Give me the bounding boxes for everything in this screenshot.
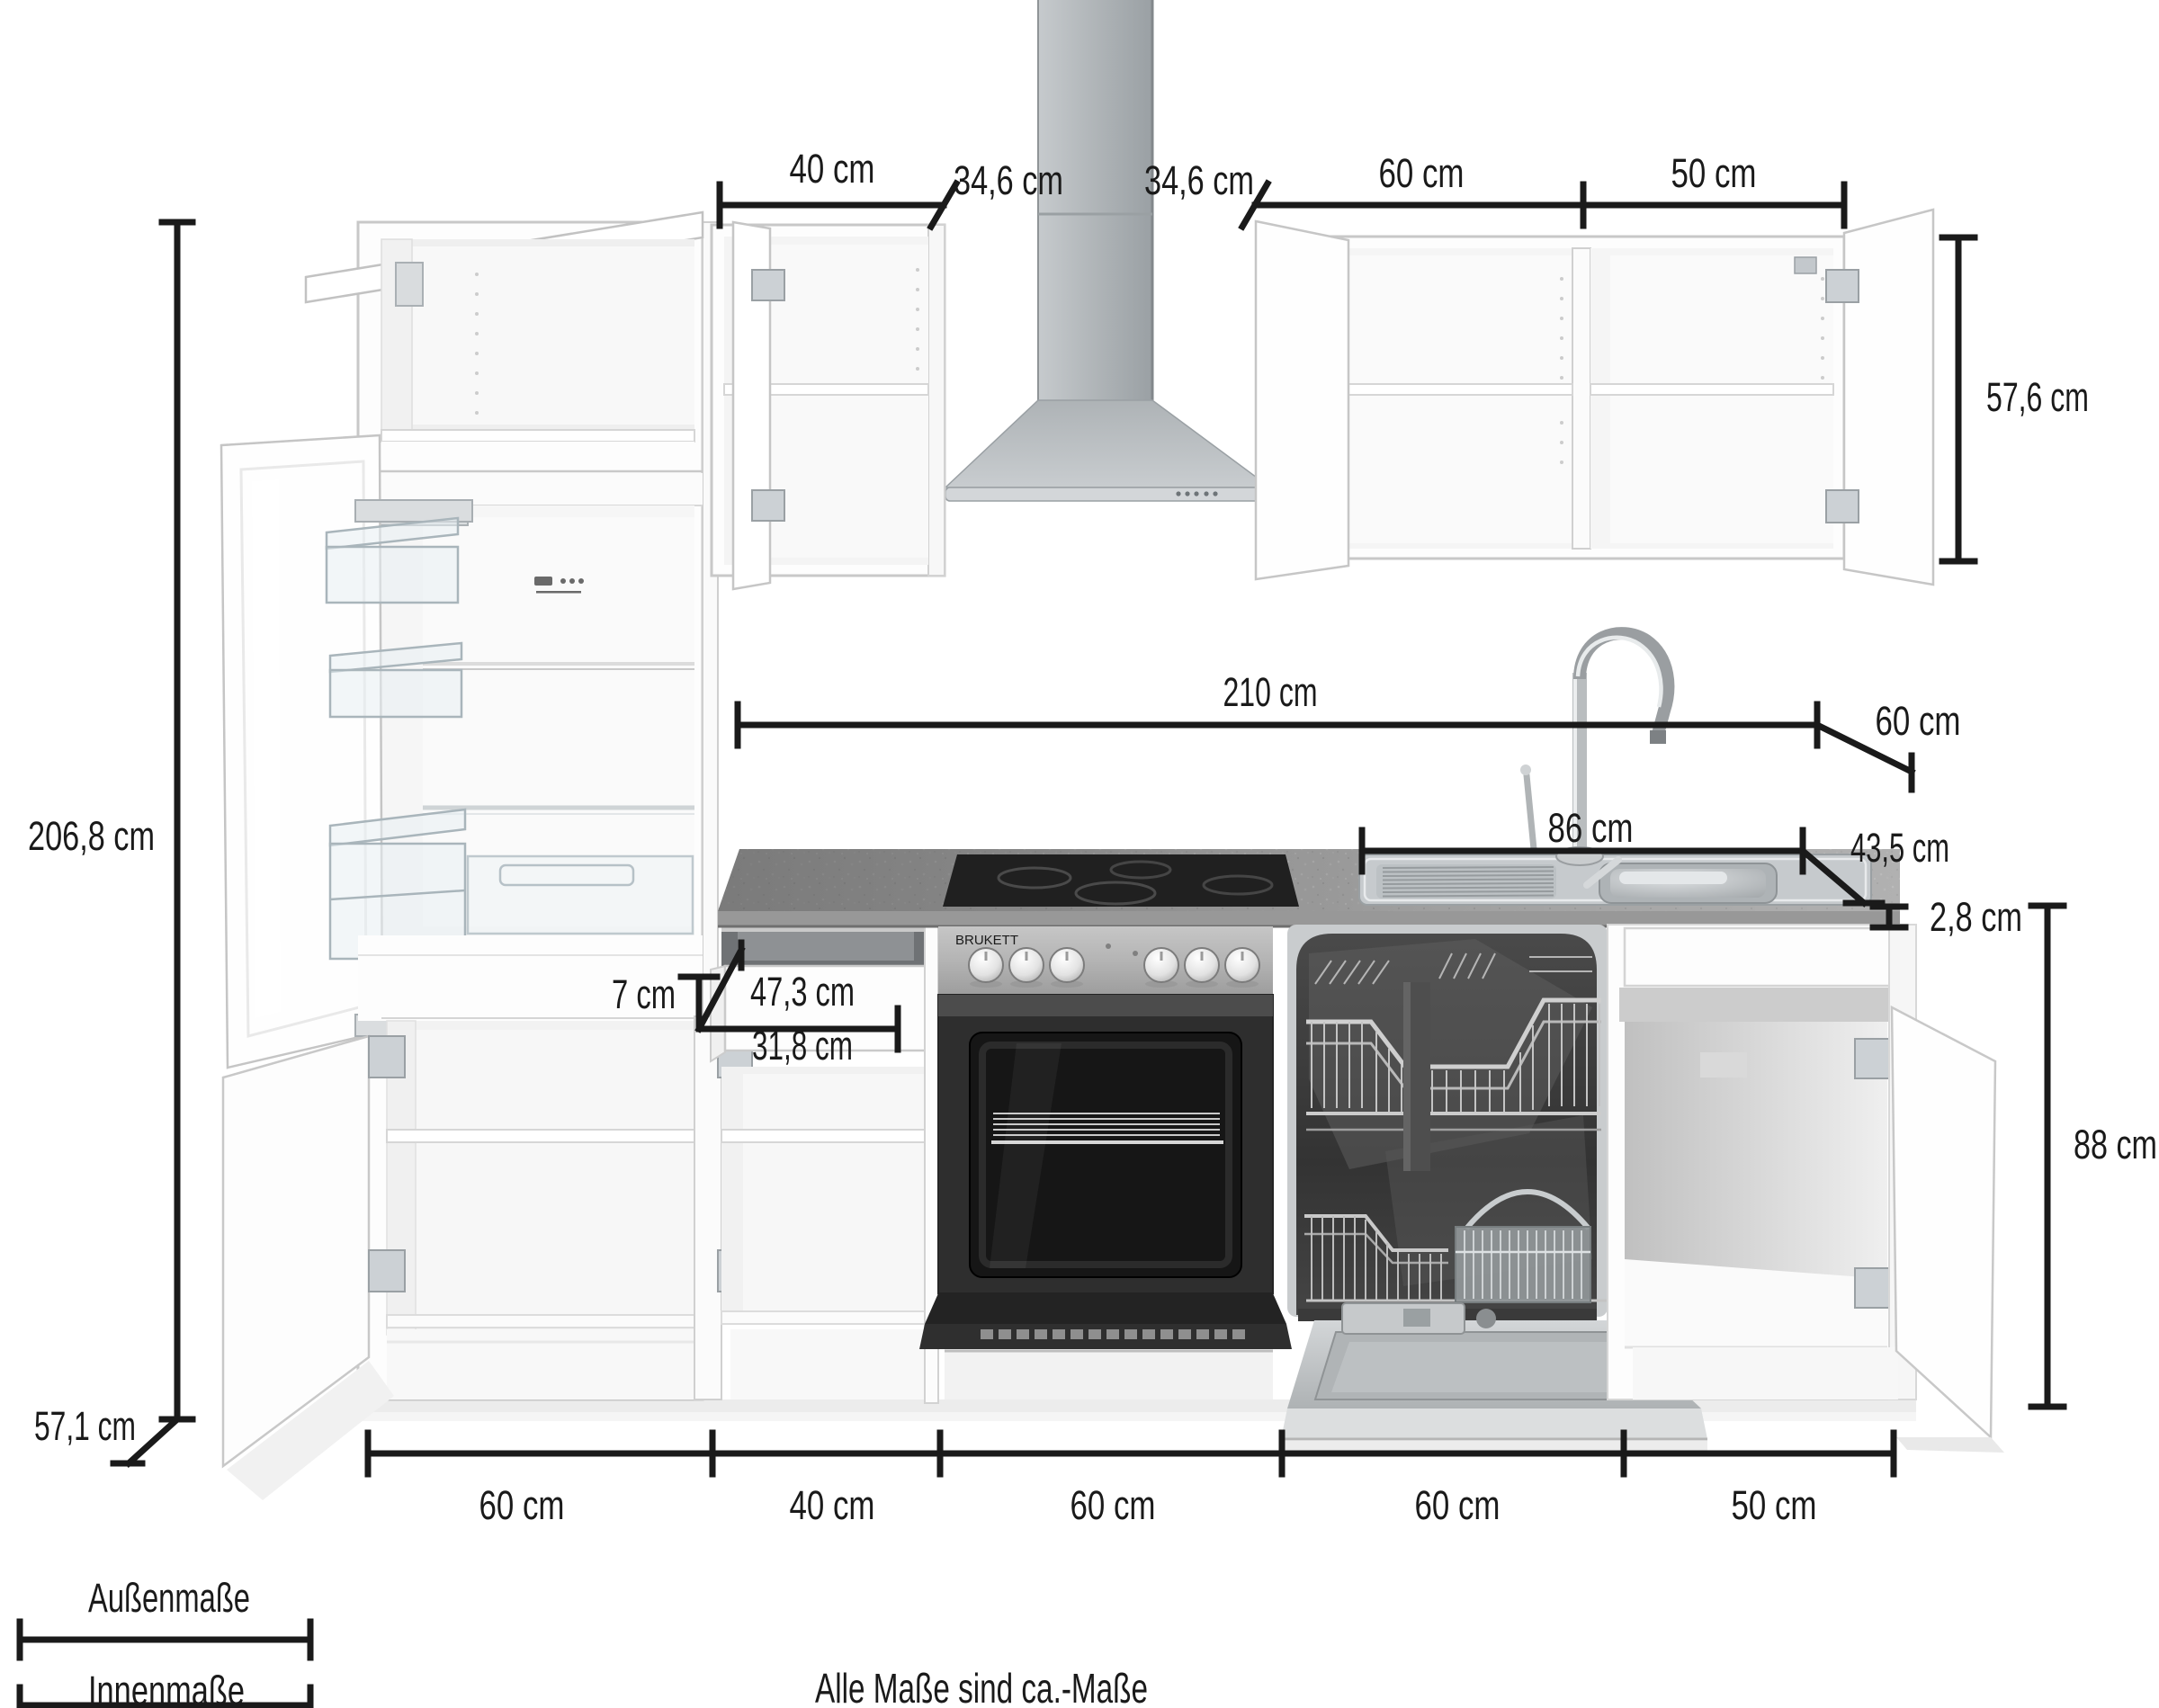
svg-text:43,5 cm: 43,5 cm: [1850, 825, 1949, 871]
svg-text:50 cm: 50 cm: [1671, 150, 1757, 196]
svg-text:88 cm: 88 cm: [2074, 1122, 2157, 1167]
svg-text:34,6 cm: 34,6 cm: [1144, 157, 1254, 203]
svg-text:BRUKETT: BRUKETT: [955, 933, 1018, 948]
svg-text:60 cm: 60 cm: [1071, 1482, 1156, 1528]
svg-text:40 cm: 40 cm: [790, 1482, 875, 1528]
svg-text:Außenmaße: Außenmaße: [88, 1575, 250, 1621]
svg-text:60 cm: 60 cm: [1415, 1482, 1501, 1528]
svg-text:34,6 cm: 34,6 cm: [954, 157, 1063, 203]
svg-text:60 cm: 60 cm: [1379, 150, 1465, 196]
svg-text:60 cm: 60 cm: [1876, 698, 1961, 744]
svg-text:57,1 cm: 57,1 cm: [34, 1403, 136, 1449]
svg-text:50 cm: 50 cm: [1732, 1482, 1817, 1528]
svg-text:206,8 cm: 206,8 cm: [28, 813, 155, 859]
svg-text:Innenmaße: Innenmaße: [88, 1668, 245, 1708]
svg-text:Alle Maße sind ca.-Maße: Alle Maße sind ca.-Maße: [815, 1665, 1148, 1708]
svg-text:40 cm: 40 cm: [790, 146, 875, 192]
svg-text:57,6 cm: 57,6 cm: [1986, 374, 2089, 420]
svg-text:86 cm: 86 cm: [1548, 805, 1634, 851]
svg-text:31,8 cm: 31,8 cm: [752, 1023, 853, 1069]
svg-text:60 cm: 60 cm: [479, 1482, 565, 1528]
svg-text:2,8 cm: 2,8 cm: [1930, 894, 2022, 940]
svg-text:7 cm: 7 cm: [612, 971, 676, 1017]
svg-text:210 cm: 210 cm: [1223, 669, 1318, 715]
svg-text:47,3 cm: 47,3 cm: [750, 969, 855, 1015]
